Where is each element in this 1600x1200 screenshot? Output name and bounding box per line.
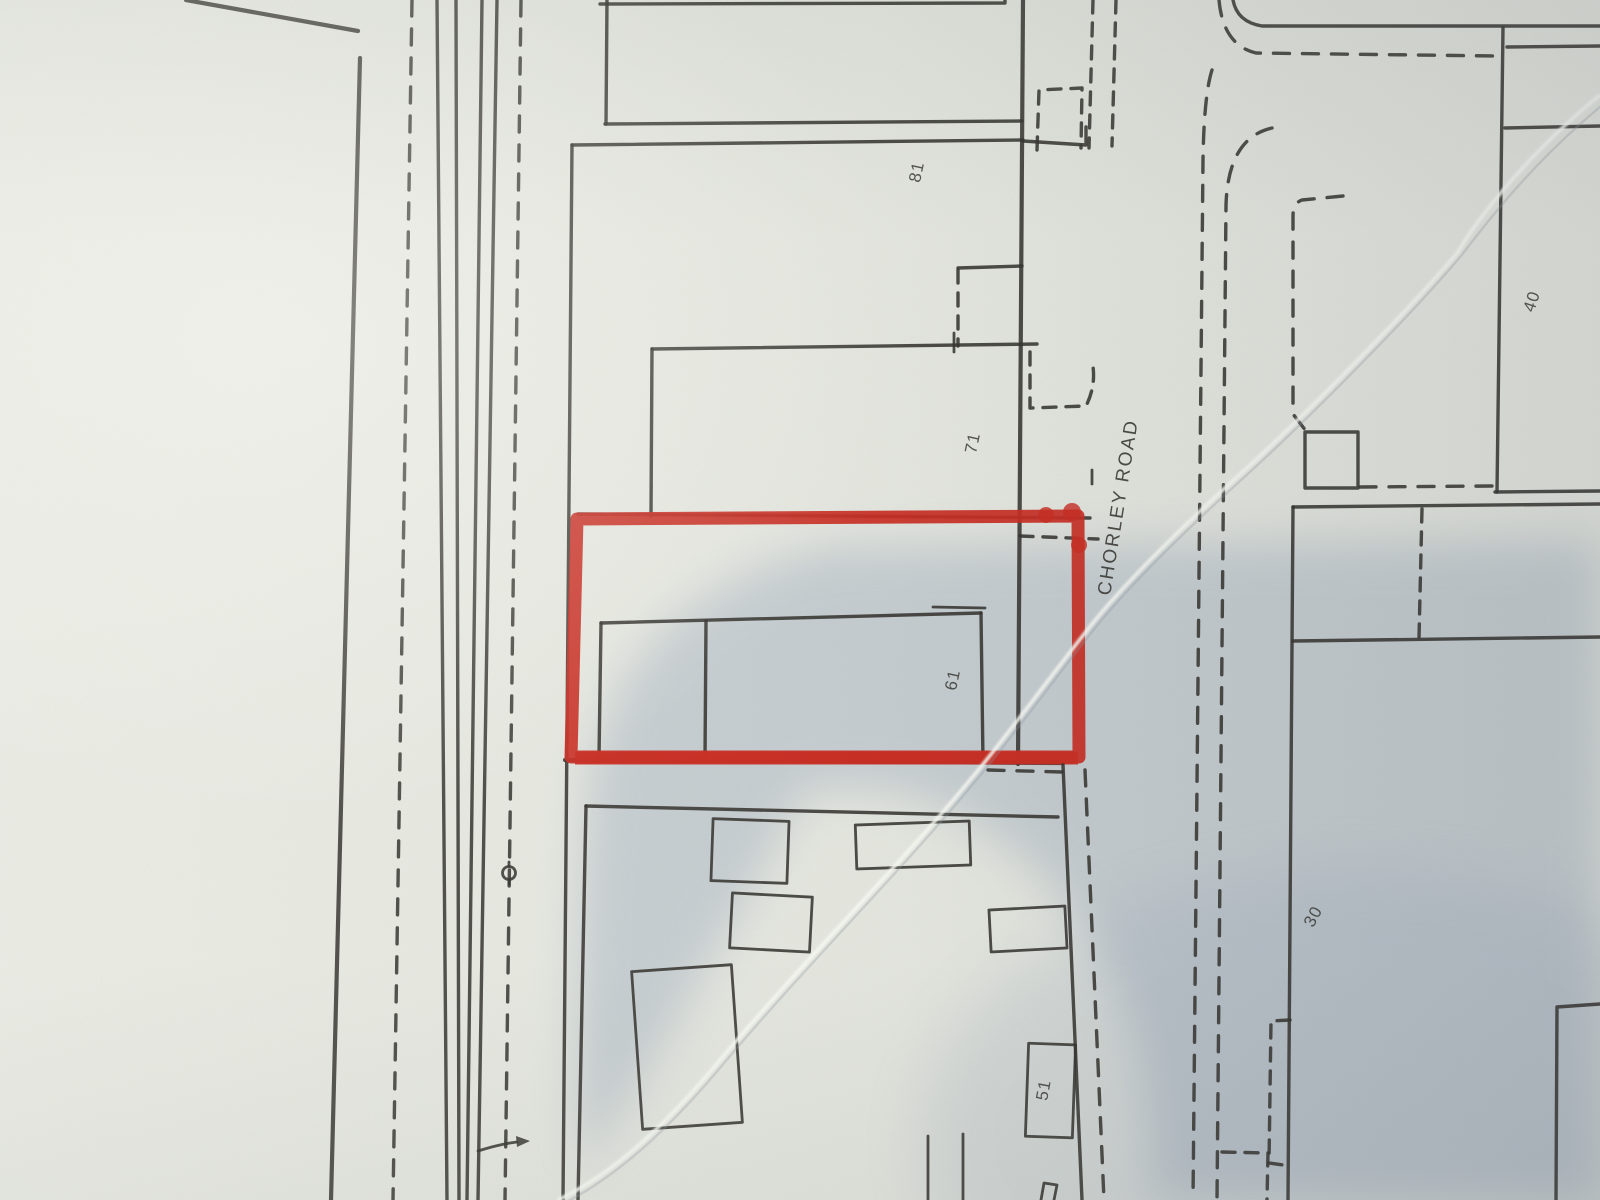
red-ink-blob — [1071, 537, 1087, 553]
red-ink-blob — [1063, 503, 1081, 521]
house-number-51: 51 — [1032, 1078, 1054, 1102]
red-ink-blob — [1038, 507, 1054, 523]
site-plan-photo: 81 71 61 51 40 30 CHORLEY ROAD — [0, 0, 1600, 1200]
plan-drawing: 81 71 61 51 40 30 CHORLEY ROAD — [0, 0, 1600, 1200]
